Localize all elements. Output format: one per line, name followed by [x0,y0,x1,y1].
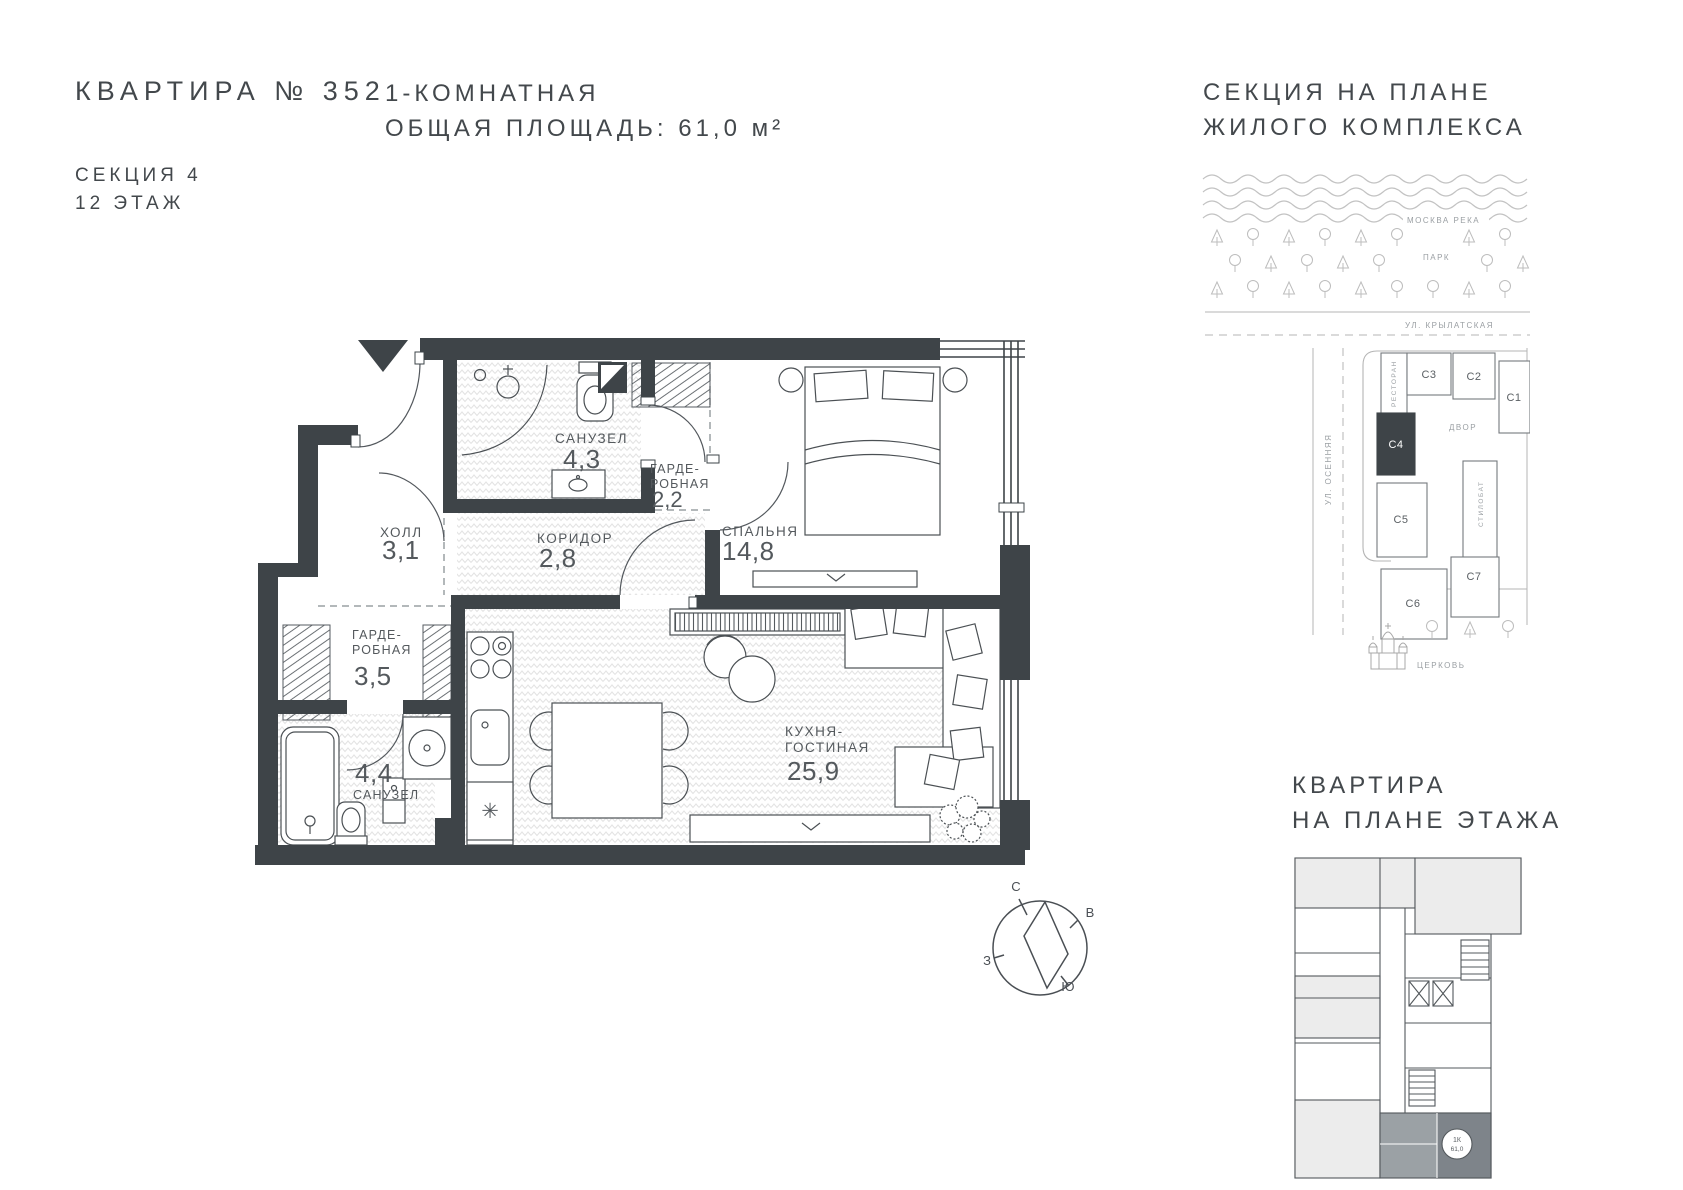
svg-text:3,5: 3,5 [354,661,392,691]
restaurant-label: РЕСТОРАН [1391,360,1398,407]
toilet-icon-2 [335,802,367,845]
complex-buildings [1363,351,1530,639]
window-mullion [999,503,1024,512]
site-plan-title-line1: СЕКЦИЯ НА ПЛАНЕ [1203,75,1492,110]
room-label-kitchen-living: КУХНЯ- [785,724,844,739]
room-label-wardrobe-top: ГАРДЕ- [650,462,700,476]
svg-text:С3: С3 [1421,369,1436,381]
compass-icon: С В З Ю [975,870,1105,1020]
room-label-wardrobe-left: ГАРДЕ- [352,628,402,642]
park-label: ПАРК [1423,253,1450,262]
compass-west: З [983,953,991,968]
street-left-label: УЛ. ОСЕННЯЯ [1324,434,1333,505]
site-map: МОСКВА РЕКА ПАРК УЛ. КРЫЛАТСКАЯ УЛ. ОСЕН… [1195,165,1530,675]
park-trees [1212,229,1529,299]
compass-east: В [1086,905,1095,920]
kitchen-sink [471,710,509,765]
compass-north: С [1011,879,1020,894]
svg-text:С1: С1 [1506,392,1521,404]
svg-text:2,8: 2,8 [539,543,577,573]
window-sill-bottom [690,815,930,842]
fridge-symbol-icon: ✳ [481,800,499,823]
apartment-type: 1-КОМНАТНАЯ [385,76,600,111]
entrance-arrow-icon [358,340,408,372]
site-plan-title-line2: ЖИЛОГО КОМПЛЕКСА [1203,110,1526,145]
svg-text:РОБНАЯ: РОБНАЯ [352,643,412,657]
floor-thumb-title-line1: КВАРТИРА [1292,768,1446,803]
bed [779,367,967,535]
compass-south: Ю [1061,979,1074,994]
river-label: МОСКВА РЕКА [1407,216,1480,225]
washing-machine [403,717,451,779]
floor-plan-sheet: КВАРТИРА № 352 1-КОМНАТНАЯ ОБЩАЯ ПЛОЩАДЬ… [0,0,1683,1190]
svg-text:4,3: 4,3 [563,444,601,474]
room-label-bathroom-bottom: 4,4 [355,758,393,788]
compass-needle [1024,902,1068,988]
tv-console [670,609,845,635]
nightstand-left [779,368,803,392]
church-label: ЦЕРКОВЬ [1417,661,1465,670]
floor-label: 12 ЭТАЖ [75,190,184,218]
street-top-label: УЛ. КРЫЛАТСКАЯ [1405,321,1494,330]
svg-text:С6: С6 [1405,598,1420,610]
svg-text:С5: С5 [1393,514,1408,526]
svg-text:С7: С7 [1466,571,1481,583]
vanity-sink [552,470,605,498]
bedroom-console [753,571,917,587]
svg-text:2,2: 2,2 [652,487,683,512]
total-area: ОБЩАЯ ПЛОЩАДЬ: 61,0 м² [385,111,784,146]
svg-text:ГОСТИНАЯ: ГОСТИНАЯ [785,740,870,755]
floor-plan-thumbnail: 1К 61,0 [1285,848,1530,1186]
svg-text:25,9: 25,9 [787,756,840,786]
apartment-badge [1442,1129,1472,1159]
apartment-number-title: КВАРТИРА № 352 [75,76,386,107]
nightstand-right [943,368,967,392]
section-label: СЕКЦИЯ 4 [75,162,202,190]
floor-thumb-title-line2: НА ПЛАНЕ ЭТАЖА [1292,803,1562,838]
svg-text:14,8: 14,8 [722,536,775,566]
building-c7 [1451,557,1499,617]
stylobate-label: СТИЛОБАТ [1478,481,1485,527]
svg-text:1К: 1К [1453,1137,1462,1144]
svg-text:С2: С2 [1466,371,1481,383]
svg-text:С4: С4 [1388,439,1403,451]
courtyard-label: ДВОР [1449,423,1477,432]
apartment-floor-plan: ХОЛЛ 3,1 САНУЗЕЛ 4,3 ГАРДЕ- РОБНАЯ 2,2 К… [255,305,1030,865]
svg-text:61,0: 61,0 [1451,1146,1464,1153]
svg-text:САНУЗЕЛ: САНУЗЕЛ [353,788,419,802]
svg-text:3,1: 3,1 [382,535,420,565]
bathtub [281,727,339,845]
